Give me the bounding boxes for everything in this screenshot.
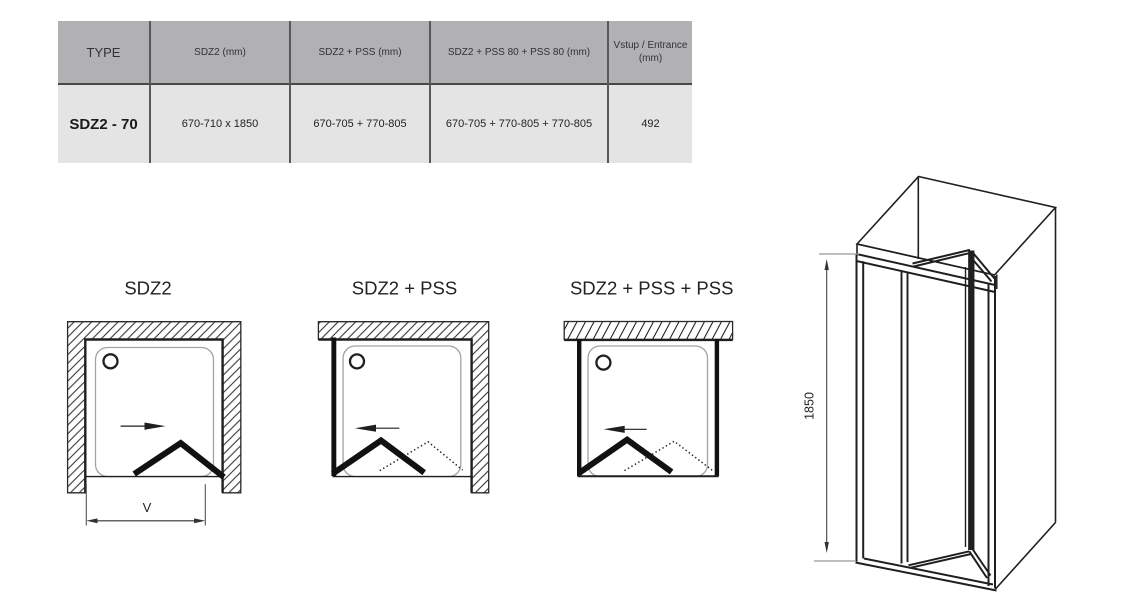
svg-text:V: V — [143, 500, 152, 515]
svg-text:SDZ2: SDZ2 — [124, 278, 171, 299]
svg-text:SDZ2 + PSS + PSS: SDZ2 + PSS + PSS — [570, 278, 734, 299]
svg-text:SDZ2 + PSS: SDZ2 + PSS — [352, 278, 457, 299]
svg-text:1850: 1850 — [802, 392, 816, 420]
